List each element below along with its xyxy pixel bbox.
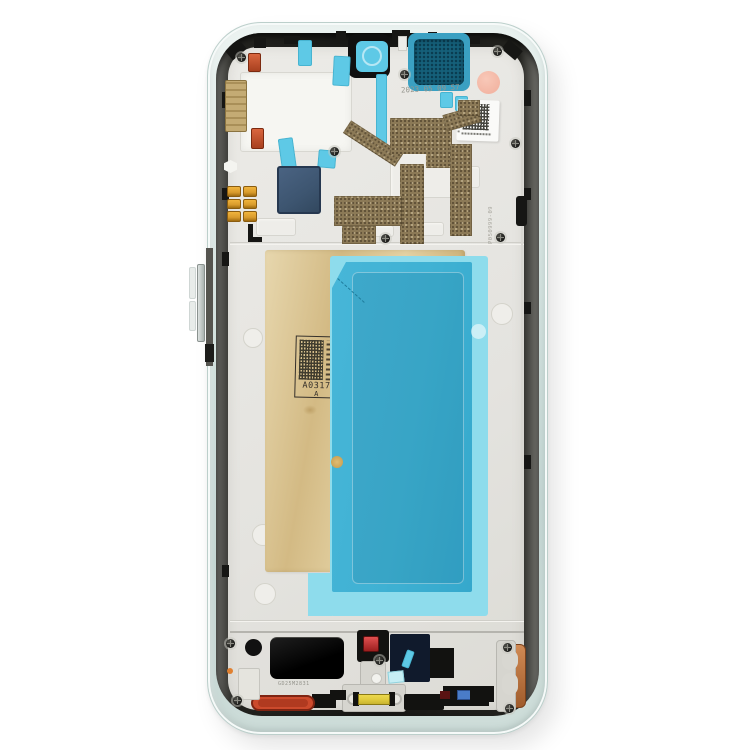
antenna-notch <box>524 302 531 314</box>
cyan-tape <box>298 40 312 66</box>
black-tab <box>404 694 444 710</box>
orange-dot <box>227 668 233 674</box>
camera-lens-ring <box>362 46 382 66</box>
screw <box>226 639 235 648</box>
cyan-tape <box>332 56 351 87</box>
screw <box>505 704 514 713</box>
volume-button <box>189 267 196 299</box>
gold-antenna-contact <box>225 80 247 132</box>
etched-code-text: P050999-09 <box>488 190 500 244</box>
label-microtext <box>462 132 492 135</box>
antenna-notch <box>254 38 266 48</box>
white-tab <box>398 36 407 51</box>
screw <box>233 696 242 705</box>
adhesive-ring <box>491 303 513 325</box>
product-photo: 2023 05 09 57 A0317 A GD25M2831 <box>0 0 750 750</box>
white-bracket <box>238 668 260 700</box>
gold-spring-contact <box>227 211 241 222</box>
gold-dot <box>331 456 343 468</box>
screw <box>400 70 409 79</box>
loudspeaker-gasket <box>251 695 315 711</box>
plate-seam-bottom <box>230 620 524 622</box>
side-key-tab <box>205 344 214 362</box>
adhesive-ring <box>254 583 276 605</box>
bracket-lobe <box>502 650 518 670</box>
earpiece-speaker-mesh <box>414 39 464 85</box>
red-clip <box>248 53 261 72</box>
gold-spring-contact <box>227 199 241 210</box>
screw <box>330 147 339 156</box>
shield-plate-module <box>277 166 321 214</box>
film-bubble <box>471 324 486 339</box>
screw <box>375 656 384 665</box>
copper-antenna-flex <box>450 144 472 236</box>
speaker-etch-text: GD25M2831 <box>278 681 348 687</box>
black-tab <box>470 686 494 702</box>
plate-seam-top <box>230 242 524 245</box>
sticker-stain <box>303 405 317 415</box>
embossed-slot <box>256 218 296 236</box>
antenna-notch <box>222 252 229 266</box>
black-tab <box>330 690 346 700</box>
teal-film-inner-panel <box>352 272 464 584</box>
microphone-hole <box>245 639 262 656</box>
light-cyan-pad <box>387 670 404 684</box>
camera-protective-film <box>356 41 388 72</box>
charging-port-connector <box>358 694 390 705</box>
adhesive-ring <box>243 328 263 348</box>
gasket-slot <box>258 699 308 707</box>
teal-film-tab <box>308 573 332 616</box>
loudspeaker-box <box>270 637 344 679</box>
screw <box>503 643 512 652</box>
gold-spring-contact <box>243 199 257 210</box>
screw <box>493 47 502 56</box>
gold-spring-contact <box>243 186 257 197</box>
bracket-lobe <box>502 673 518 695</box>
antenna-notch <box>524 90 531 106</box>
copper-antenna-flex <box>342 226 376 244</box>
gold-spring-contact <box>243 211 257 222</box>
side-antenna-block <box>516 196 527 226</box>
cyan-tape-strip <box>376 74 387 144</box>
gold-spring-contact <box>227 186 241 197</box>
antenna-notch <box>524 455 531 469</box>
copper-antenna-flex <box>334 196 402 226</box>
power-button <box>189 301 196 331</box>
dark-red-component <box>440 691 450 699</box>
sensor-pink-sticker <box>477 71 500 94</box>
black-module <box>430 648 454 678</box>
l-bracket <box>248 237 262 242</box>
red-switch-component <box>363 636 379 652</box>
stamp-qr-block <box>299 340 324 381</box>
screw <box>381 234 390 243</box>
antenna-notch <box>222 565 229 577</box>
antenna-notch <box>336 31 346 40</box>
white-dot-pad <box>371 673 382 684</box>
side-key-slot <box>197 264 205 342</box>
screw <box>511 139 520 148</box>
copper-antenna-flex <box>458 100 480 116</box>
copper-antenna-flex <box>400 164 424 244</box>
plate-seam-right <box>521 100 523 600</box>
red-clip <box>251 128 264 149</box>
cyan-tape <box>440 92 453 108</box>
screw <box>237 53 246 62</box>
gold-spring-contacts <box>227 186 257 222</box>
